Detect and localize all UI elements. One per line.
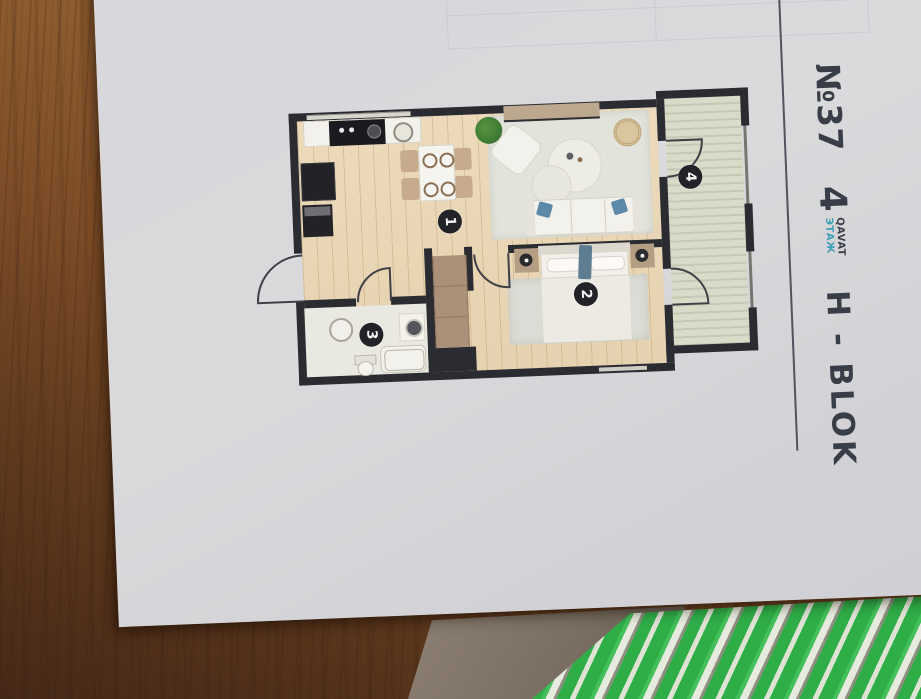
header-divider xyxy=(817,273,855,275)
floor-number: 4 xyxy=(811,185,855,212)
header-divider xyxy=(813,168,851,170)
showthrough-line xyxy=(445,0,449,48)
photo-scene: №37 4 QAVAT ЭТАЖ H - BLOK xyxy=(0,0,921,699)
unit-number: №37 xyxy=(808,62,851,152)
door-arcs xyxy=(228,87,774,400)
balcony-door-arc-bottom xyxy=(671,267,708,304)
showthrough-line xyxy=(653,0,657,40)
floor-labels: QAVAT ЭТАЖ xyxy=(823,217,847,257)
entry-door-arc xyxy=(256,255,304,303)
floor-label-ru: ЭТАЖ xyxy=(823,217,836,256)
bathroom-door-arc xyxy=(357,268,391,302)
paper-sheet: №37 4 QAVAT ЭТАЖ H - BLOK xyxy=(92,0,921,627)
bedroom-door-arc xyxy=(474,253,509,288)
floor-block: 4 QAVAT ЭТАЖ xyxy=(811,185,857,257)
floor-label-uz: QAVAT xyxy=(834,217,847,256)
floor-plan: 1 2 3 4 xyxy=(288,87,761,389)
block-name: H - BLOK xyxy=(819,290,862,468)
sheet-header: №37 4 QAVAT ЭТАЖ H - BLOK xyxy=(778,0,889,451)
